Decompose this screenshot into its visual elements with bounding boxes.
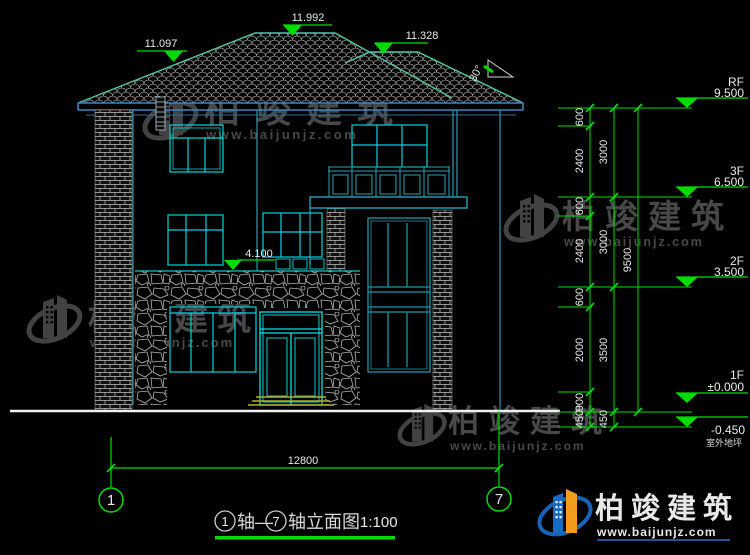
brick-pier-balcony-right xyxy=(433,210,452,410)
level-ground-value: -0.450 xyxy=(711,423,745,437)
footer-site-url: www.baijunjz.com xyxy=(596,525,717,539)
vdim-inner-600c: 600 xyxy=(574,288,586,306)
vdim-mid-3500: 3500 xyxy=(598,338,610,362)
axis-7-number: 7 xyxy=(495,491,503,508)
roof-dim-right-text: 11.328 xyxy=(406,30,439,42)
watermark-brand: 柏竣建筑 xyxy=(448,404,612,439)
vdim-inner-600a: 600 xyxy=(574,108,586,126)
level-1f-value: ±0.000 xyxy=(707,380,744,394)
axis-1-number: 1 xyxy=(107,492,115,509)
vdim-inner-600b: 600 xyxy=(574,197,586,215)
ledge-level-text: 4.100 xyxy=(245,248,273,260)
title-underline xyxy=(215,536,395,540)
roof-dim-ridge-text: 11.992 xyxy=(292,12,325,24)
footer-brand-name: 柏竣建筑 xyxy=(595,491,739,525)
watermark-site: www.baijunjz.com xyxy=(205,127,358,142)
vdim-inner-2400b: 2400 xyxy=(574,239,586,263)
roof-vent-stack xyxy=(156,97,165,130)
vdim-mid-450: 450 xyxy=(598,410,610,428)
vdim-mid-3000a: 3000 xyxy=(598,140,610,164)
cad-elevation-drawing: 柏竣建筑 www.baijunjz.com 柏竣建筑 www.baijunjz.… xyxy=(0,0,750,555)
drawing-canvas: 柏竣建筑 www.baijunjz.com 柏竣建筑 www.baijunjz.… xyxy=(0,0,750,555)
vdim-inner-2400a: 2400 xyxy=(574,149,586,173)
vdim-mid-3000b: 3000 xyxy=(598,230,610,254)
title-axis-left: 1 xyxy=(221,514,228,529)
balcony-slab xyxy=(310,197,467,208)
brick-pillar-left xyxy=(95,110,132,411)
vdim-inner-2000: 2000 xyxy=(574,338,586,362)
brick-pier-balcony-left xyxy=(327,208,345,272)
vdim-outer-9500: 9500 xyxy=(622,248,634,272)
level-ground-label: 室外地坪 xyxy=(706,437,742,448)
title-seg2: 轴立面图 xyxy=(288,512,360,532)
overall-dim-text: 12800 xyxy=(288,455,319,467)
vdim-inner-450: 450 xyxy=(574,410,586,428)
vdim-inner-900: 900 xyxy=(574,393,586,411)
roof-dim-left-text: 11.097 xyxy=(145,38,178,50)
title-axis-right: 7 xyxy=(272,514,279,529)
title-scale: 1:100 xyxy=(360,514,398,531)
watermark-site: www.baijunjz.com xyxy=(449,439,586,453)
